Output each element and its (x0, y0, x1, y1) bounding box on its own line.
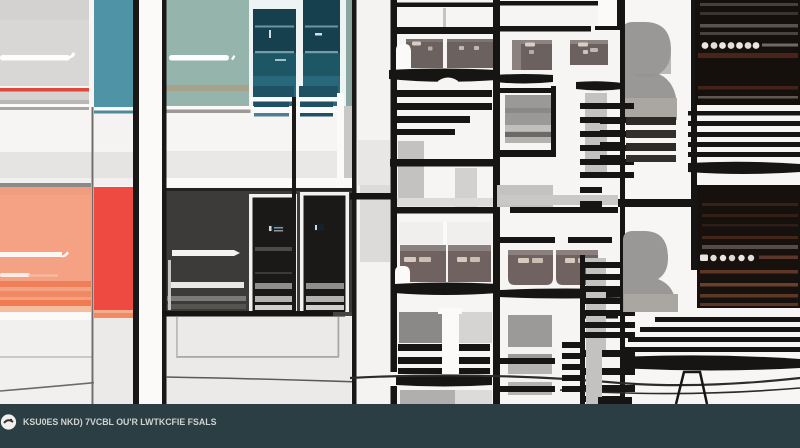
svg-text:KSU0ES NKD) 7VCBL OU'R LWTKCFI: KSU0ES NKD) 7VCBL OU'R LWTKCFIE FSALS (23, 417, 217, 427)
